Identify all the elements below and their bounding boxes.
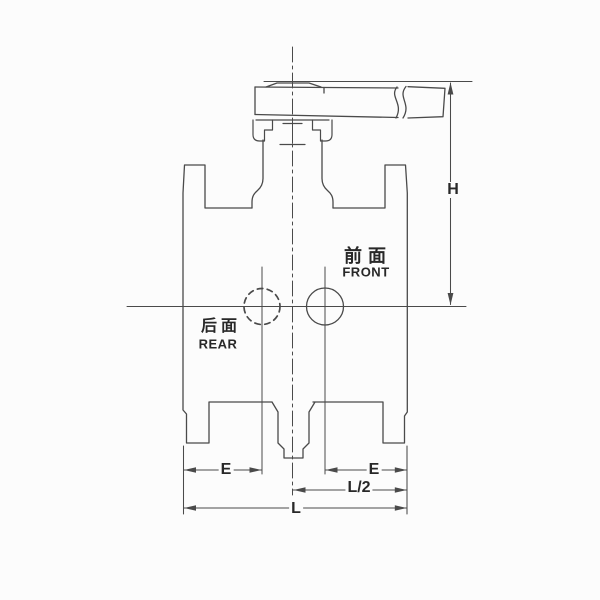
valve-body — [183, 140, 407, 458]
dimension-label-h: H — [445, 182, 461, 198]
bonnet-neck-right — [322, 140, 333, 208]
dimension-label-l: L — [289, 501, 303, 517]
handle-end-piece — [408, 87, 445, 118]
e-right-arrow-right — [395, 467, 407, 473]
valve-engineering-drawing: 前面 FRONT 后面 REAR H E E L/2 L — [0, 0, 600, 600]
handle-assembly — [255, 83, 445, 118]
stem-gland — [253, 120, 332, 145]
rear-view-label-english: REAR — [199, 338, 238, 351]
ports — [244, 267, 344, 474]
handle-top-edge — [255, 87, 398, 88]
l-arrow-right — [395, 505, 407, 511]
l2-arrow-left — [294, 487, 306, 493]
gland-ear-left — [253, 120, 273, 141]
rear-view-label-chinese: 后面 — [201, 319, 241, 335]
l-arrow-left — [184, 505, 196, 511]
h-arrow-down — [448, 293, 454, 305]
handle-cap — [266, 83, 321, 87]
handle-bottom-edge — [255, 115, 398, 118]
dimension-label-e-right: E — [367, 462, 382, 478]
gland-ear-right — [313, 120, 333, 141]
h-arrow-up — [448, 83, 454, 95]
bonnet-neck-left — [252, 140, 263, 208]
break-squiggle-left — [395, 87, 399, 118]
body-outline-left — [183, 165, 272, 443]
body-outline-right — [313, 165, 407, 443]
front-view-label-english: FRONT — [342, 266, 389, 279]
e-left-arrow-left — [184, 467, 196, 473]
front-view-label-chinese: 前面 — [344, 247, 392, 265]
l2-arrow-right — [395, 487, 407, 493]
drain-boss — [272, 402, 315, 458]
dimension-label-e-left: E — [219, 462, 234, 478]
e-right-arrow-left — [326, 467, 338, 473]
dimensions — [184, 82, 473, 515]
dimension-label-l2: L/2 — [345, 480, 372, 496]
centerlines — [127, 47, 466, 495]
break-squiggle-right — [403, 87, 406, 119]
e-left-arrow-right — [250, 467, 262, 473]
